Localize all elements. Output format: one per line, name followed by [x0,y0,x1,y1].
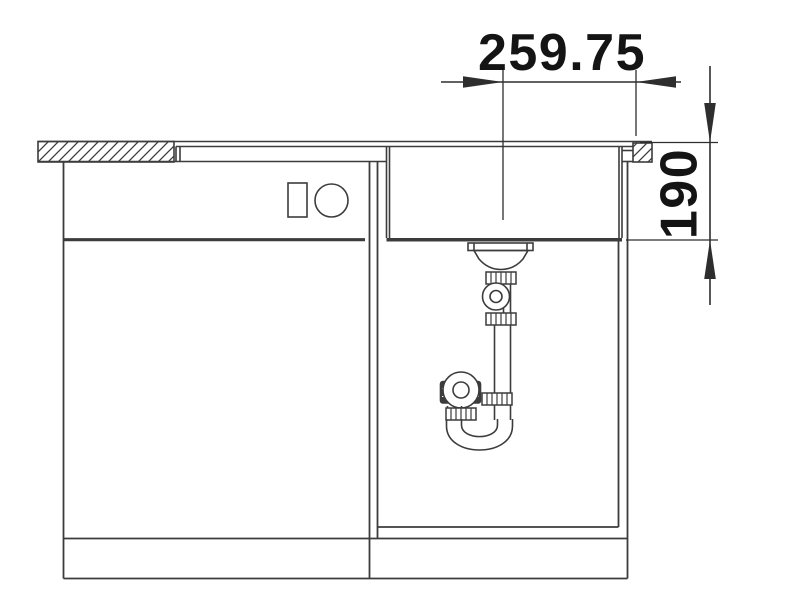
dimension-arrow-top [704,103,716,143]
trap-u-bend-inner [462,419,498,437]
countertop-cross-section-left [38,142,174,163]
trap-u-bend-outer [447,419,513,450]
dimension-value-horizontal: 259.75 [478,24,646,82]
strainer-body [474,251,528,270]
sink-installation-drawing: 259.75 190 [0,0,785,599]
locknut [486,272,516,284]
locknut [482,393,512,405]
dimension-value-vertical: 190 [651,148,709,239]
countertop-cross-section-right [633,143,652,162]
drain-assembly [441,243,534,450]
cabinet [64,162,628,579]
strainer-flange [468,243,533,251]
technical-drawing-page: 259.75 190 [0,0,785,599]
locknut [486,313,516,325]
sink-bowl [387,147,623,240]
overflow-elbow-outer [483,283,510,310]
dimension-arrow-bottom [704,240,716,279]
control-knob [315,184,348,217]
control-switch [288,183,307,217]
trap-body-outer [443,372,479,408]
locknut [446,408,476,420]
countertop [38,142,652,163]
dimension-vertical: 190 [626,66,718,305]
dimension-horizontal: 259.75 [441,24,681,220]
